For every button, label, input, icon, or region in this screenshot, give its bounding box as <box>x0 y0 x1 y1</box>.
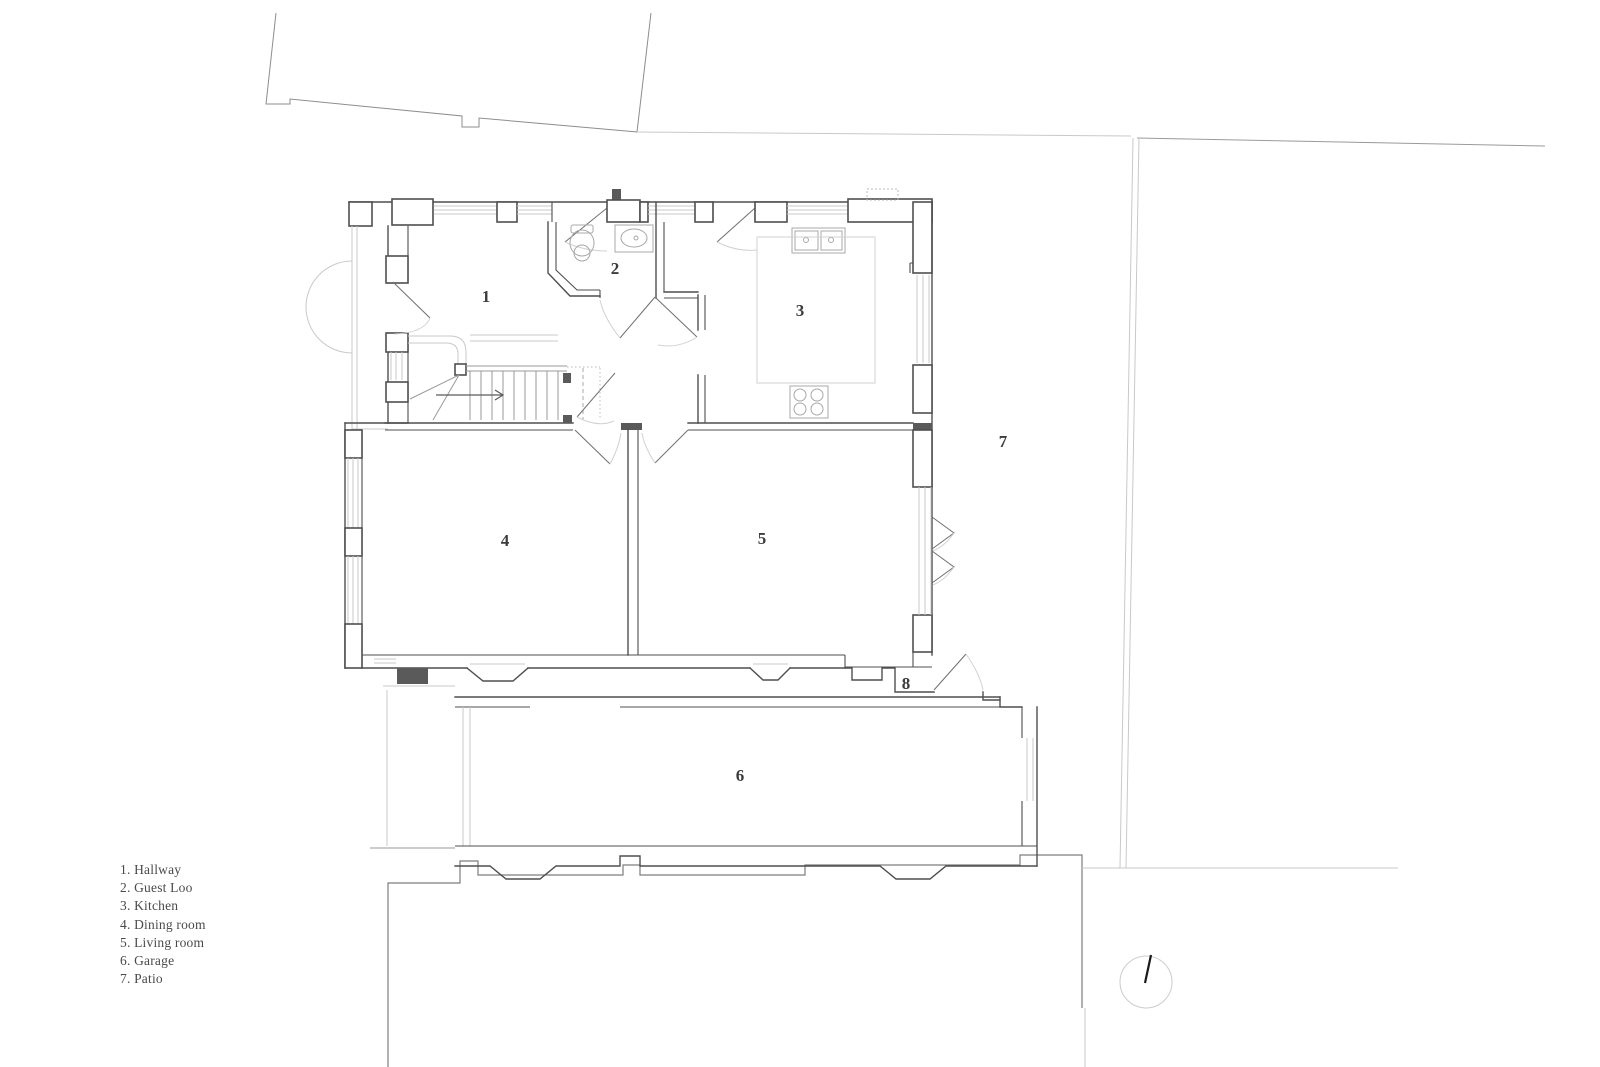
french-doors <box>913 487 954 615</box>
legend-item: 6. Garage <box>120 952 206 970</box>
room-label-living-room: 5 <box>758 529 767 548</box>
north-arrow-icon <box>1120 955 1172 1008</box>
stove-icon <box>790 386 828 418</box>
room-label-patio: 7 <box>999 432 1008 451</box>
bay-window <box>467 668 528 681</box>
floor-plan-drawing: 1 2 3 4 5 6 7 8 <box>0 0 1600 1067</box>
house-exterior-walls <box>306 189 1000 700</box>
room-label-kitchen: 3 <box>796 301 805 320</box>
legend: 1. Hallway 2. Guest Loo 3. Kitchen 4. Di… <box>120 861 206 988</box>
legend-item: 2. Guest Loo <box>120 879 206 897</box>
bay-window <box>750 668 790 680</box>
winder-treads <box>410 375 459 420</box>
interior-walls <box>385 202 913 655</box>
legend-item: 7. Patio <box>120 970 206 988</box>
legend-item: 5. Living room <box>120 934 206 952</box>
toilet-icon <box>570 225 594 261</box>
kitchen-counter <box>757 237 875 383</box>
handrail <box>466 366 567 371</box>
floor-plan-page: 1 2 3 4 5 6 7 8 1. Hallway 2. Guest Loo … <box>0 0 1600 1067</box>
porch-pier <box>397 668 428 684</box>
room-label-guest-loo: 2 <box>611 259 620 278</box>
room-label-back-porch: 8 <box>902 674 911 693</box>
legend-item: 1. Hallway <box>120 861 206 879</box>
room-label-garage: 6 <box>736 766 745 785</box>
room-label-hallway: 1 <box>482 287 491 306</box>
legend-item: 4. Dining room <box>120 916 206 934</box>
dining-room-window <box>348 458 358 528</box>
garage-walls <box>370 686 1037 879</box>
property-boundary <box>266 13 1545 146</box>
newel-post <box>455 364 466 375</box>
stairs <box>408 335 615 424</box>
kitchen-window <box>917 275 929 363</box>
wall-pier <box>349 202 372 226</box>
porch-canopy-arc <box>306 261 352 353</box>
kitchen-sink-icon <box>792 228 845 253</box>
fence-line <box>1120 138 1139 868</box>
sink-icon <box>615 225 653 252</box>
neighbor-building-south <box>388 855 1398 1067</box>
room-label-dining-room: 4 <box>501 531 510 550</box>
legend-item: 3. Kitchen <box>120 897 206 915</box>
